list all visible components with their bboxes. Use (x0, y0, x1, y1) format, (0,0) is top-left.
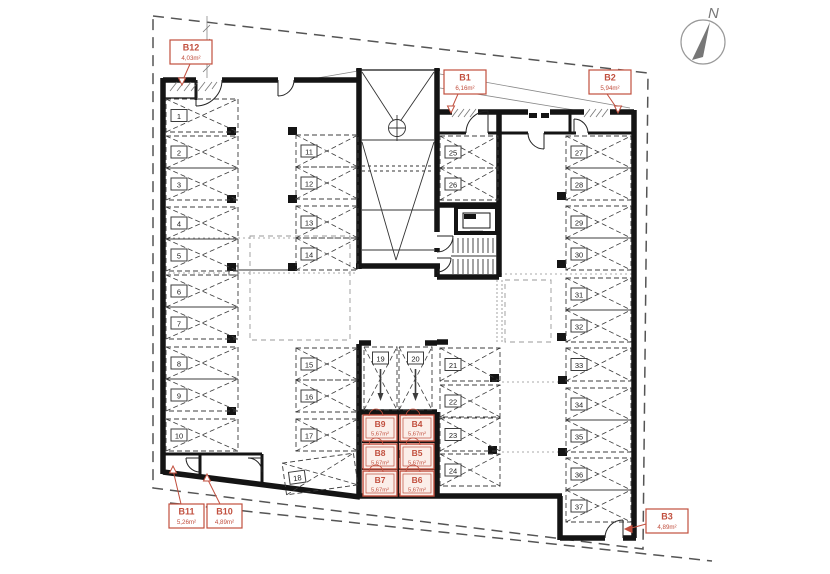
parking-space-19: 19 (364, 347, 397, 410)
parking-number: 30 (575, 251, 583, 260)
parking-space-25: 25 (440, 136, 498, 168)
aisle-marking-right (505, 280, 551, 342)
parking-space-34: 34 (566, 388, 631, 420)
label-area: 6,16m² (455, 85, 474, 92)
parking-space-11: 11 (296, 135, 358, 167)
parking-number: 14 (305, 251, 313, 260)
parking-number: 16 (305, 393, 313, 402)
columns (227, 127, 567, 458)
parking-space-10: 10 (166, 419, 238, 451)
label-id: B11 (178, 507, 194, 517)
parking-number: 25 (449, 149, 457, 158)
parking-number: 26 (449, 181, 457, 190)
parking-space-37: 37 (566, 490, 631, 522)
storage-cell-id: B7 (375, 475, 386, 485)
parking-space-30: 30 (566, 238, 631, 270)
parking-number: 12 (305, 180, 313, 189)
elevator-shaft (456, 207, 497, 233)
parking-space-21: 21 (440, 348, 500, 381)
parking-number: 15 (305, 361, 313, 370)
parking-space-31: 31 (566, 278, 631, 310)
label-id: B12 (183, 43, 200, 53)
floor-plan-canvas: N 12345678910111213141516171819202122232… (0, 0, 830, 574)
parking-space-15: 15 (296, 348, 358, 380)
stair-risers (451, 238, 497, 274)
parking-number: 13 (305, 219, 313, 228)
compass: N (681, 5, 725, 64)
label-leader-arrow (170, 466, 177, 473)
floor-plan-page: N 12345678910111213141516171819202122232… (0, 0, 830, 574)
parking-space-3: 3 (166, 168, 238, 200)
parking-number: 10 (175, 432, 183, 441)
parking-number: 31 (575, 291, 583, 300)
label-id: B10 (216, 507, 233, 517)
parking-space-5: 5 (166, 239, 238, 271)
parking-space-20: 20 (399, 347, 432, 410)
label-area: 4,03m² (181, 55, 200, 62)
label-area: 4,89m² (215, 519, 234, 526)
parking-number: 23 (449, 431, 457, 440)
storage-room-label-B2: B25,94m² (589, 70, 631, 113)
parking-number: 4 (177, 220, 181, 229)
parking-number: 24 (449, 467, 457, 476)
parking-space-16: 16 (296, 380, 358, 412)
parking-number: 28 (575, 181, 583, 190)
parking-number: 32 (575, 323, 583, 332)
storage-cell-id: B4 (412, 419, 423, 429)
parking-space-6: 6 (166, 275, 238, 307)
parking-number: 5 (177, 252, 181, 261)
parking-space-23: 23 (440, 418, 500, 451)
parking-number: 17 (305, 432, 313, 441)
parking-number: 6 (177, 288, 181, 297)
storage-cell-id: B8 (375, 448, 386, 458)
label-id: B1 (459, 73, 471, 83)
compass-needle (692, 22, 710, 60)
parking-space-2: 2 (166, 136, 238, 168)
parking-space-12: 12 (296, 167, 358, 199)
parking-space-9: 9 (166, 379, 238, 411)
ramp (362, 72, 434, 260)
parking-number: 19 (376, 355, 384, 364)
shaft-guide-lines (497, 280, 502, 344)
parking-number: 37 (575, 503, 583, 512)
parking-space-28: 28 (566, 168, 631, 200)
parking-number: 35 (575, 433, 583, 442)
parking-space-29: 29 (566, 206, 631, 238)
storage-cell-id: B6 (412, 475, 423, 485)
parking-number: 27 (575, 149, 583, 158)
parking-number: 29 (575, 219, 583, 228)
label-leader-line (207, 478, 220, 504)
ramp-drain-cross (389, 115, 405, 141)
label-leader-arrow (625, 526, 632, 533)
compass-north-label: N (708, 5, 719, 22)
storage-room-label-B1: B16,16m² (444, 70, 486, 113)
storage-cell-area: 5,67m² (408, 432, 426, 438)
parking-space-26: 26 (440, 168, 498, 200)
parking-number: 21 (449, 361, 457, 370)
parking-space-36: 36 (566, 458, 631, 490)
parking-number: 3 (177, 181, 181, 190)
parking-number: 8 (177, 360, 181, 369)
entrance-door-leaves (529, 113, 549, 118)
label-id: B3 (661, 512, 673, 522)
parking-space-22: 22 (440, 385, 500, 417)
storage-cell-area: 5,67m² (371, 488, 389, 494)
label-area: 5,94m² (600, 85, 619, 92)
storage-cell-id: B9 (375, 419, 386, 429)
parking-space-17: 17 (296, 419, 358, 451)
slope-arrow-head (378, 393, 384, 401)
parking-number: 22 (449, 398, 457, 407)
parking-space-27: 27 (566, 136, 631, 168)
parking-space-32: 32 (566, 310, 631, 342)
parking-number: 1 (177, 112, 181, 121)
parking-space-33: 33 (566, 348, 631, 381)
parking-space-1: 1 (166, 99, 238, 132)
slope-arrow-head (413, 393, 419, 401)
ramp-break-lines (362, 166, 434, 171)
parking-number: 18 (293, 473, 303, 483)
parking-space-35: 35 (566, 420, 631, 452)
window-hatches (170, 82, 608, 117)
parking-space-24: 24 (440, 454, 500, 486)
parking-space-8: 8 (166, 347, 238, 379)
parking-number: 9 (177, 392, 181, 401)
storage-cell-id: B5 (412, 448, 423, 458)
storage-cell-area: 5,67m² (371, 432, 389, 438)
label-area: 4,89m² (657, 524, 676, 531)
parking-space-7: 7 (166, 307, 238, 339)
storage-cell-area: 5,67m² (408, 488, 426, 494)
label-id: B2 (604, 73, 616, 83)
parking-number: 36 (575, 471, 583, 480)
elevator-counterweight (464, 214, 476, 219)
parking-number: 34 (575, 401, 583, 410)
parking-number: 33 (575, 361, 583, 370)
stair-core (451, 207, 497, 274)
parking-number: 7 (177, 320, 181, 329)
parking-number: 2 (177, 149, 181, 158)
parking-space-4: 4 (166, 207, 238, 239)
aisle-marking-left (250, 236, 350, 340)
parking-number: 11 (305, 148, 313, 157)
parking-number: 20 (411, 355, 419, 364)
parking-space-14: 14 (296, 238, 358, 270)
parking-space-13: 13 (296, 206, 358, 238)
label-area: 5,26m² (177, 519, 196, 526)
thin-walls (163, 70, 440, 98)
